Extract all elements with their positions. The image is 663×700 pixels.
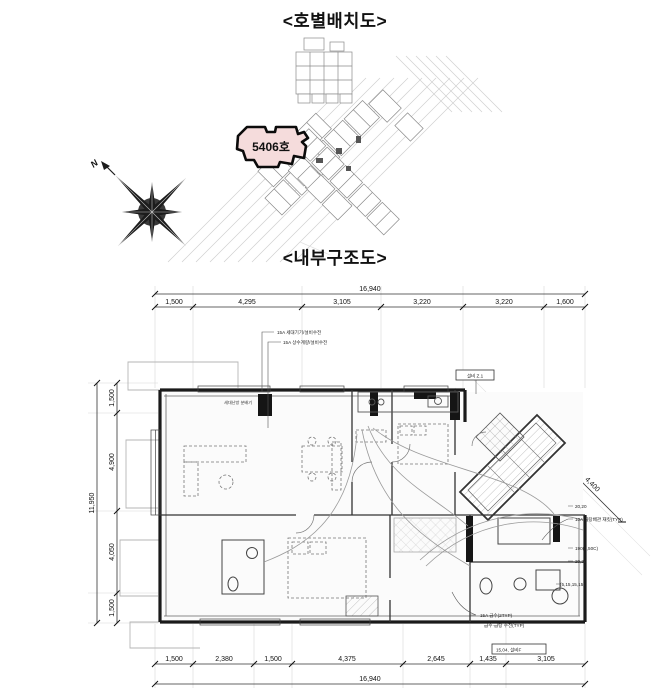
dim-label: 1,500 <box>109 599 116 617</box>
dim-label: 1,500 <box>264 656 282 663</box>
floorplan-document: <호별배치도> <box>0 0 663 700</box>
annotation-label: 설비 Z.1 <box>467 373 484 380</box>
dim-label: 3,220 <box>413 299 431 306</box>
dim-label: 11,950 <box>89 492 96 513</box>
dim-label: 1,600 <box>556 299 574 306</box>
annotation-label: 20,20 <box>575 504 587 509</box>
dim-label: 1,435 <box>479 656 497 663</box>
dim-label: 3,220 <box>495 299 513 306</box>
floor-plan-drawing: 16,940 1,500 4,295 3,105 3,220 3,220 1,6… <box>88 286 650 688</box>
dim-label: 4,900 <box>109 453 116 471</box>
annotation-label: (5,15,15,15) <box>560 582 585 587</box>
dim-label: 2,380 <box>215 656 233 663</box>
floor-plan-title: <내부구조도> <box>283 248 387 268</box>
grating <box>346 596 378 616</box>
dim-label: 4,050 <box>109 543 116 561</box>
compass-rose-icon: N <box>89 157 186 246</box>
annotation-label: 15A 세대기기/설비수전 <box>277 329 321 336</box>
dim-label: 1,500 <box>165 299 183 306</box>
dim-label: 1,500 <box>165 656 183 663</box>
annotation-label: 급수·급탕 수전(TYP) <box>484 622 525 629</box>
annotation-label: 15,04, 설비F <box>496 647 522 654</box>
annotation-label: 세대난방 분배기 <box>224 399 252 406</box>
dim-label: 2,645 <box>427 656 445 663</box>
dim-label: 4,375 <box>338 656 356 663</box>
dim-label: 3,105 <box>537 656 555 663</box>
dim-label: 3,105 <box>333 299 351 306</box>
drawing-canvas: <호별배치도> <box>0 0 663 700</box>
site-plan-title: <호별배치도> <box>283 11 387 31</box>
annotation-label: 20,20 <box>575 559 587 564</box>
closet <box>394 518 456 552</box>
annotation-label: 15A 상수계량/설비수전 <box>283 339 327 346</box>
dim-label: 1,500 <box>109 389 116 407</box>
compass-north-label: N <box>89 157 101 169</box>
unit-number-label: 5406호 <box>252 140 290 154</box>
dim-label: 16,940 <box>359 286 381 293</box>
dim-label: 4,400 <box>583 476 600 493</box>
annotation-label: 190(2,50C) <box>575 546 598 551</box>
dim-label: 16,940 <box>359 676 381 683</box>
annotation-label: 10A 급탕배관 재킷(TYP) <box>575 516 623 523</box>
dim-label: 4,295 <box>238 299 256 306</box>
site-plan-drawing: 5406호 N <box>89 38 502 262</box>
